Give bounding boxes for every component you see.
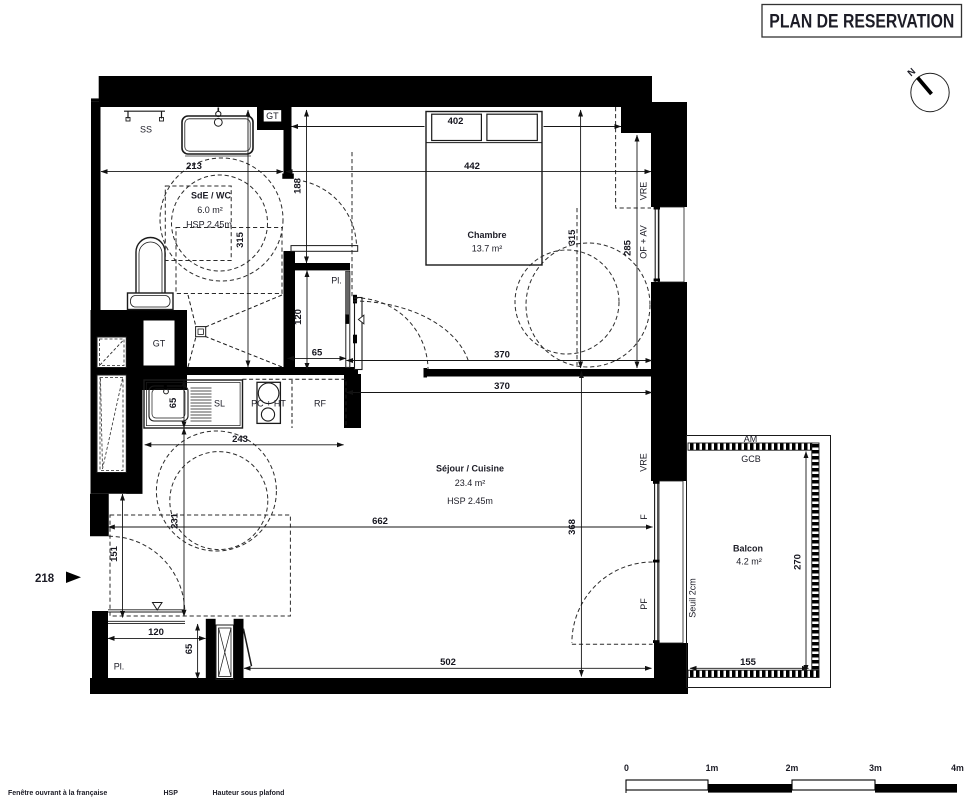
svg-text:402: 402: [448, 116, 464, 127]
svg-text:0: 0: [624, 763, 629, 773]
svg-text:Fenêtre ouvrant à la française: Fenêtre ouvrant à la française: [8, 790, 107, 797]
svg-text:188: 188: [293, 178, 304, 194]
svg-text:PC + HT: PC + HT: [251, 399, 286, 409]
svg-text:F: F: [639, 514, 649, 520]
svg-text:Pl.: Pl.: [114, 662, 125, 672]
svg-text:AM: AM: [744, 434, 758, 444]
svg-text:2m: 2m: [786, 763, 799, 773]
svg-text:23.4 m²: 23.4 m²: [455, 478, 486, 488]
svg-text:PF: PF: [639, 598, 649, 610]
svg-text:VRE: VRE: [639, 182, 649, 201]
svg-text:65: 65: [312, 348, 323, 359]
svg-text:OF + AV: OF + AV: [639, 225, 649, 259]
svg-text:662: 662: [372, 516, 388, 527]
svg-text:HSP 2.45m: HSP 2.45m: [447, 496, 493, 506]
svg-text:SS: SS: [140, 125, 152, 135]
svg-text:65: 65: [184, 643, 195, 654]
svg-text:GT: GT: [266, 111, 279, 121]
svg-text:370: 370: [494, 381, 510, 392]
svg-text:370: 370: [494, 350, 510, 361]
svg-text:GT: GT: [153, 339, 166, 349]
svg-text:285: 285: [623, 239, 634, 256]
svg-text:Hauteur sous plafond: Hauteur sous plafond: [213, 790, 285, 797]
svg-text:231: 231: [170, 512, 181, 529]
svg-text:SL: SL: [214, 399, 225, 409]
svg-text:243: 243: [232, 434, 248, 445]
svg-text:1m: 1m: [706, 763, 719, 773]
svg-text:4m: 4m: [951, 763, 964, 773]
svg-text:4.2 m²: 4.2 m²: [736, 557, 762, 567]
svg-text:120: 120: [148, 627, 164, 638]
svg-text:PLAN DE RESERVATION: PLAN DE RESERVATION: [769, 12, 954, 33]
svg-text:6.0 m²: 6.0 m²: [197, 205, 223, 215]
svg-text:270: 270: [793, 554, 804, 570]
svg-text:Pl.: Pl.: [331, 276, 342, 286]
svg-text:SdE / WC: SdE / WC: [191, 191, 231, 201]
svg-text:RF: RF: [314, 399, 326, 409]
svg-text:315: 315: [567, 229, 578, 246]
svg-text:Seuil 2cm: Seuil 2cm: [688, 578, 698, 618]
svg-text:HSP: HSP: [164, 790, 179, 797]
svg-text:151: 151: [109, 545, 120, 562]
svg-text:3m: 3m: [869, 763, 882, 773]
svg-text:13.7 m²: 13.7 m²: [472, 244, 503, 254]
svg-text:Balcon: Balcon: [733, 544, 763, 554]
svg-text:65: 65: [168, 397, 179, 408]
svg-text:442: 442: [464, 161, 480, 172]
svg-text:155: 155: [740, 657, 757, 668]
svg-text:368: 368: [567, 519, 578, 535]
svg-text:213: 213: [186, 161, 202, 172]
svg-text:Chambre: Chambre: [467, 230, 506, 240]
svg-text:GCB: GCB: [741, 454, 761, 464]
svg-text:VRE: VRE: [639, 453, 649, 472]
svg-text:HSP 2.45m: HSP 2.45m: [186, 220, 232, 230]
svg-text:218: 218: [35, 573, 55, 585]
svg-text:315: 315: [235, 231, 246, 248]
svg-text:Séjour / Cuisine: Séjour / Cuisine: [436, 464, 504, 474]
svg-text:502: 502: [440, 657, 456, 668]
svg-text:120: 120: [293, 309, 304, 325]
